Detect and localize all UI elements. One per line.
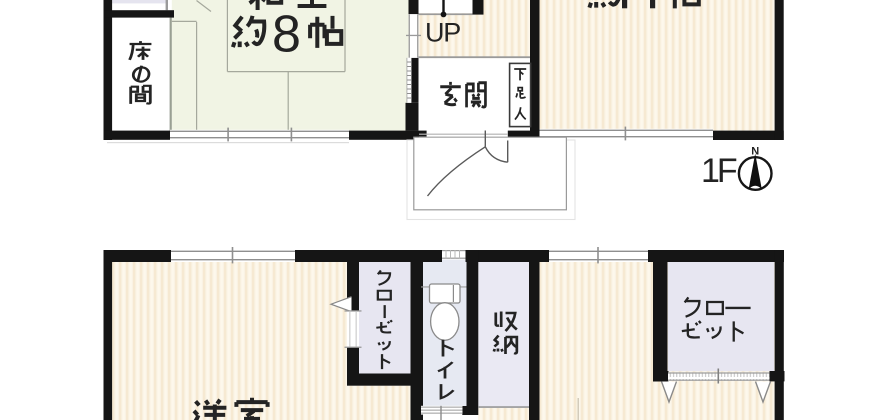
svg-text:N: N xyxy=(751,146,759,158)
svg-text:1F: 1F xyxy=(701,152,737,190)
svg-text:UP: UP xyxy=(425,18,460,48)
svg-text:8: 8 xyxy=(272,5,301,63)
